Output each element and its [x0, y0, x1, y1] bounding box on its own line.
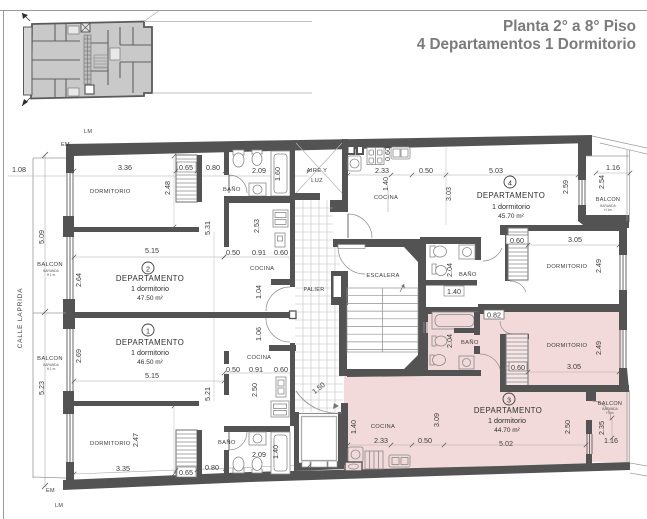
svg-text:3.36: 3.36 [118, 163, 132, 172]
svg-text:0.60: 0.60 [510, 236, 524, 245]
svg-text:DEPARTAMENTO: DEPARTAMENTO [477, 191, 545, 200]
svg-text:2.69: 2.69 [74, 349, 83, 363]
svg-text:4: 4 [508, 179, 512, 188]
svg-text:1.16: 1.16 [604, 436, 618, 445]
svg-text:2.49: 2.49 [594, 259, 603, 273]
svg-text:1.40: 1.40 [447, 287, 461, 296]
svg-text:47.50 m²: 47.50 m² [137, 295, 163, 302]
svg-text:1.40: 1.40 [381, 177, 390, 191]
svg-text:2.09: 2.09 [252, 450, 266, 459]
svg-text:BALCON: BALCON [37, 356, 63, 362]
svg-text:BALCON: BALCON [37, 262, 63, 268]
svg-text:2.50: 2.50 [250, 383, 259, 397]
svg-text:CALLE LAPRIDA: CALLE LAPRIDA [17, 288, 24, 349]
svg-text:46.50 m²: 46.50 m² [137, 359, 163, 366]
svg-text:2.35: 2.35 [597, 421, 606, 435]
svg-text:2.54: 2.54 [597, 175, 606, 189]
svg-text:5.15: 5.15 [145, 246, 159, 255]
svg-text:0.50: 0.50 [226, 365, 240, 374]
svg-text:5.03: 5.03 [489, 166, 503, 175]
svg-text:0.80: 0.80 [206, 163, 220, 172]
svg-text:2.33: 2.33 [374, 436, 388, 445]
svg-text:1.60: 1.60 [273, 167, 282, 181]
svg-text:2.48: 2.48 [163, 181, 172, 195]
svg-text:2.64: 2.64 [74, 273, 83, 287]
svg-text:Planta 2° a 8° Piso: Planta 2° a 8° Piso [503, 18, 636, 35]
svg-text:0.80: 0.80 [205, 463, 219, 472]
svg-text:1 dormitorio: 1 dormitorio [131, 348, 169, 357]
svg-text:1 dormitorio: 1 dormitorio [492, 202, 530, 211]
svg-text:3.05: 3.05 [568, 235, 582, 244]
svg-text:BAÑO: BAÑO [459, 271, 477, 278]
svg-text:1: 1 [146, 327, 150, 336]
svg-text:45.70 m²: 45.70 m² [498, 213, 524, 220]
svg-text:3.09: 3.09 [432, 413, 441, 427]
svg-text:BAÑO: BAÑO [218, 439, 236, 446]
svg-text:0.91: 0.91 [252, 248, 266, 257]
svg-text:EM.: EM. [61, 142, 72, 148]
svg-text:2.47: 2.47 [131, 433, 140, 447]
svg-text:DEPARTAMENTO: DEPARTAMENTO [116, 274, 184, 283]
svg-text:1.06: 1.06 [254, 327, 263, 341]
svg-text:3.03: 3.03 [444, 187, 453, 201]
svg-text:PALIER: PALIER [304, 287, 325, 293]
svg-text:0.60: 0.60 [274, 248, 288, 257]
svg-text:BAÑO: BAÑO [223, 186, 241, 193]
svg-text:1 dormitorio: 1 dormitorio [488, 416, 526, 425]
svg-text:BALCON: BALCON [596, 197, 620, 203]
svg-text:H 1 m: H 1 m [47, 367, 56, 371]
svg-text:DEPARTAMENTO: DEPARTAMENTO [116, 338, 184, 347]
svg-text:H 1 m: H 1 m [47, 273, 56, 277]
svg-text:2.33: 2.33 [375, 166, 389, 175]
svg-text:0.60: 0.60 [511, 363, 525, 372]
svg-text:1.40: 1.40 [271, 445, 280, 459]
svg-text:5.23: 5.23 [37, 381, 46, 395]
svg-text:2.49: 2.49 [594, 341, 603, 355]
svg-text:COCINA: COCINA [250, 266, 274, 272]
svg-text:EM: EM [46, 488, 55, 494]
svg-text:0.50: 0.50 [419, 166, 433, 175]
svg-text:LM: LM [84, 129, 92, 135]
svg-text:DORMITORIO: DORMITORIO [90, 441, 131, 447]
svg-text:44.70 m²: 44.70 m² [494, 427, 520, 434]
svg-text:5.02: 5.02 [499, 439, 513, 448]
svg-text:DEPARTAMENTO: DEPARTAMENTO [474, 406, 542, 415]
svg-text:ESCALERA: ESCALERA [366, 273, 399, 279]
svg-text:0.50: 0.50 [418, 436, 432, 445]
svg-text:DORMITORIO: DORMITORIO [547, 264, 588, 270]
svg-text:2: 2 [146, 265, 150, 274]
svg-text:4 Departamentos 1 Dormitorio: 4 Departamentos 1 Dormitorio [417, 36, 636, 53]
svg-text:0.82: 0.82 [487, 311, 501, 320]
svg-text:H 1m: H 1m [606, 411, 614, 415]
svg-text:5.21: 5.21 [203, 387, 212, 401]
svg-text:COCINA: COCINA [247, 355, 271, 361]
svg-text:3: 3 [507, 396, 511, 405]
svg-text:0.60: 0.60 [383, 147, 392, 161]
svg-text:0.50: 0.50 [226, 248, 240, 257]
svg-text:1.40: 1.40 [349, 420, 358, 434]
svg-text:1.04: 1.04 [254, 285, 263, 299]
svg-text:0.60: 0.60 [274, 365, 288, 374]
svg-text:0.65: 0.65 [179, 163, 193, 172]
svg-text:0.65: 0.65 [179, 468, 193, 477]
svg-text:2.53: 2.53 [252, 219, 261, 233]
svg-text:2.50: 2.50 [563, 420, 572, 434]
svg-text:5.31: 5.31 [203, 221, 212, 235]
svg-text:COCINA: COCINA [374, 195, 398, 201]
svg-text:3.05: 3.05 [567, 362, 581, 371]
svg-text:1 dormitorio: 1 dormitorio [131, 284, 169, 293]
svg-text:2.09: 2.09 [252, 166, 266, 175]
svg-text:AIRE Y: AIRE Y [307, 168, 328, 174]
svg-text:1.08: 1.08 [12, 165, 26, 174]
svg-text:H 1m: H 1m [604, 208, 612, 212]
svg-text:0.91: 0.91 [249, 365, 263, 374]
svg-text:5.15: 5.15 [145, 371, 159, 380]
svg-text:DORMITORIO: DORMITORIO [90, 189, 131, 195]
svg-text:LM: LM [55, 503, 63, 509]
svg-text:2.04: 2.04 [445, 263, 454, 277]
svg-text:5.09: 5.09 [37, 230, 46, 244]
svg-text:2.59: 2.59 [561, 180, 570, 194]
svg-text:BAÑO: BAÑO [461, 339, 479, 346]
svg-text:LUZ: LUZ [311, 178, 323, 184]
svg-text:DORMITORIO: DORMITORIO [547, 343, 588, 349]
svg-text:COCINA: COCINA [371, 424, 395, 430]
svg-text:1.16: 1.16 [606, 163, 620, 172]
